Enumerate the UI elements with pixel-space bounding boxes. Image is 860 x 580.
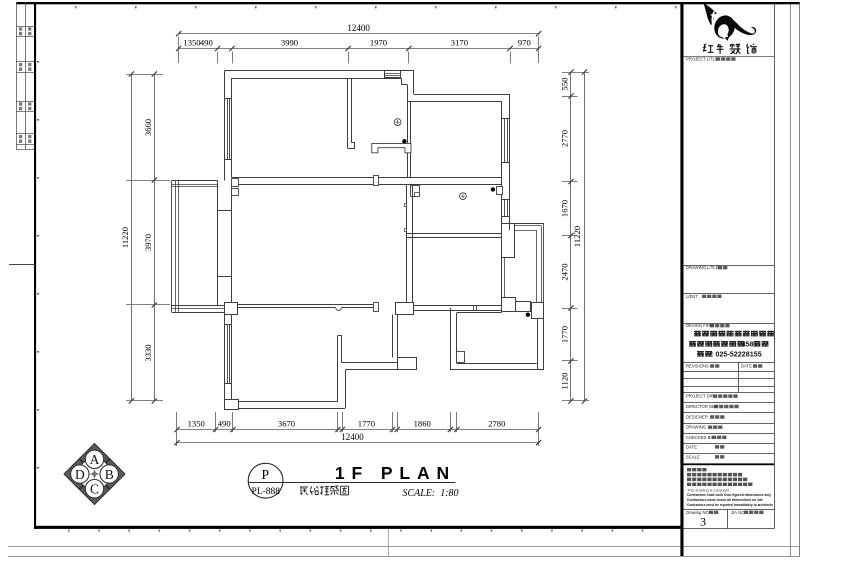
svg-text:JIA NO: JIA NO (731, 510, 745, 515)
svg-text:550: 550 (559, 78, 569, 91)
svg-text:3990: 3990 (281, 37, 298, 47)
svg-text:Contractors must be reported i: Contractors must be reported immediately… (687, 502, 774, 507)
svg-text:D: D (75, 467, 85, 482)
svg-text:1120: 1120 (559, 373, 569, 390)
svg-text:1F PLAN: 1F PLAN (335, 463, 456, 483)
svg-text:1860: 1860 (414, 418, 431, 428)
svg-text:3660: 3660 (143, 119, 153, 136)
svg-text:1350: 1350 (183, 37, 200, 47)
svg-text:CHECKED BY: CHECKED BY (686, 435, 713, 440)
svg-text:11220: 11220 (572, 226, 582, 247)
svg-text:A: A (90, 452, 100, 467)
svg-text:3170: 3170 (451, 37, 468, 47)
svg-text:3: 3 (700, 515, 706, 529)
svg-text:PROJECT L/TLE: PROJECT L/TLE (686, 56, 718, 61)
svg-text:PROJECT DIR: PROJECT DIR (686, 394, 714, 399)
svg-text:DRAWING L/TLE: DRAWING L/TLE (686, 265, 719, 270)
svg-text:: 025-52228155: : 025-52228155 (711, 349, 762, 358)
svg-text:DATE: DATE (741, 364, 752, 369)
svg-text:Drawing NO: Drawing NO (686, 510, 710, 515)
svg-text:DATE: DATE (686, 444, 697, 449)
svg-text:1670: 1670 (559, 200, 569, 217)
svg-text:11220: 11220 (120, 227, 130, 248)
svg-text:DESIGNER: DESIGNER (686, 415, 708, 420)
svg-text:DIRECTOR DER: DIRECTOR DER (686, 404, 718, 409)
svg-text:P: P (261, 467, 269, 482)
svg-text:3330: 3330 (143, 344, 153, 361)
svg-text:1970: 1970 (370, 37, 387, 47)
svg-text:C: C (90, 482, 99, 497)
svg-text:SCALE: SCALE (686, 454, 700, 459)
svg-text:2780: 2780 (488, 418, 505, 428)
svg-text:DRAWING: DRAWING (686, 425, 706, 430)
svg-text:12400: 12400 (347, 23, 370, 33)
svg-text:970: 970 (518, 37, 531, 47)
svg-text:L/ENT: L/ENT (686, 294, 698, 299)
svg-text:3970: 3970 (143, 234, 153, 251)
svg-text::: : (711, 341, 713, 348)
svg-text:1770: 1770 (358, 418, 375, 428)
svg-text:SCALE: 1:80: SCALE: 1:80 (402, 488, 458, 499)
svg-text:2470: 2470 (559, 263, 569, 280)
svg-text:PL-888: PL-888 (252, 487, 281, 497)
svg-text:B: B (105, 467, 114, 482)
svg-text:490: 490 (218, 418, 231, 428)
svg-text:12400: 12400 (341, 432, 364, 442)
svg-text:458: 458 (742, 339, 754, 348)
svg-text:2770: 2770 (559, 130, 569, 147)
svg-text:REVISIONS: REVISIONS (686, 364, 709, 369)
svg-text:490: 490 (200, 37, 213, 47)
svg-text:1770: 1770 (559, 326, 569, 343)
svg-text:DESIGN FIRM: DESIGN FIRM (686, 323, 714, 328)
svg-text:3670: 3670 (278, 418, 295, 428)
svg-text:1350: 1350 (188, 418, 205, 428)
